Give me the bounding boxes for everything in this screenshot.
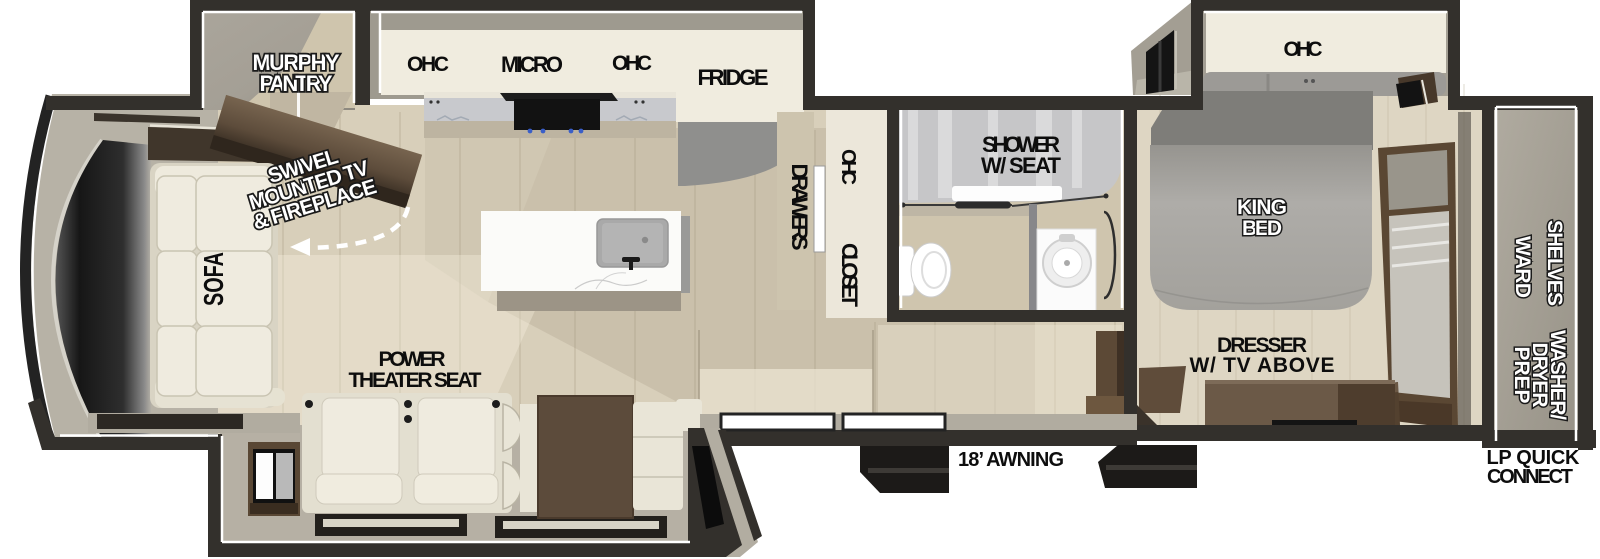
svg-text:SHELVES: SHELVES: [1543, 220, 1566, 306]
svg-text:W/ SEAT: W/ SEAT: [981, 153, 1062, 178]
svg-text:OHC: OHC: [1284, 38, 1323, 61]
svg-text:WARD: WARD: [1511, 236, 1534, 298]
svg-text:18’ AWNING: 18’ AWNING: [958, 449, 1064, 471]
svg-text:OHC: OHC: [407, 53, 449, 76]
svg-text:OHC: OHC: [837, 149, 859, 185]
svg-text:SOFA: SOFA: [198, 252, 229, 306]
svg-text:CONNECT: CONNECT: [1487, 466, 1573, 488]
svg-text:DRAWERS: DRAWERS: [787, 164, 812, 251]
svg-text:FRIDGE: FRIDGE: [698, 65, 769, 90]
svg-text:PREP: PREP: [1510, 347, 1533, 404]
svg-text:OHC: OHC: [612, 52, 652, 75]
svg-text:PANTRY: PANTRY: [260, 71, 333, 96]
svg-text:KING: KING: [1237, 196, 1287, 219]
svg-text:THEATER SEAT: THEATER SEAT: [349, 369, 482, 392]
svg-text:POWER: POWER: [379, 348, 446, 371]
svg-text:CLOSET: CLOSET: [837, 243, 862, 308]
svg-text:BED: BED: [1242, 217, 1282, 240]
svg-text:W/ TV ABOVE: W/ TV ABOVE: [1190, 354, 1335, 377]
svg-text:MICRO: MICRO: [501, 52, 563, 77]
